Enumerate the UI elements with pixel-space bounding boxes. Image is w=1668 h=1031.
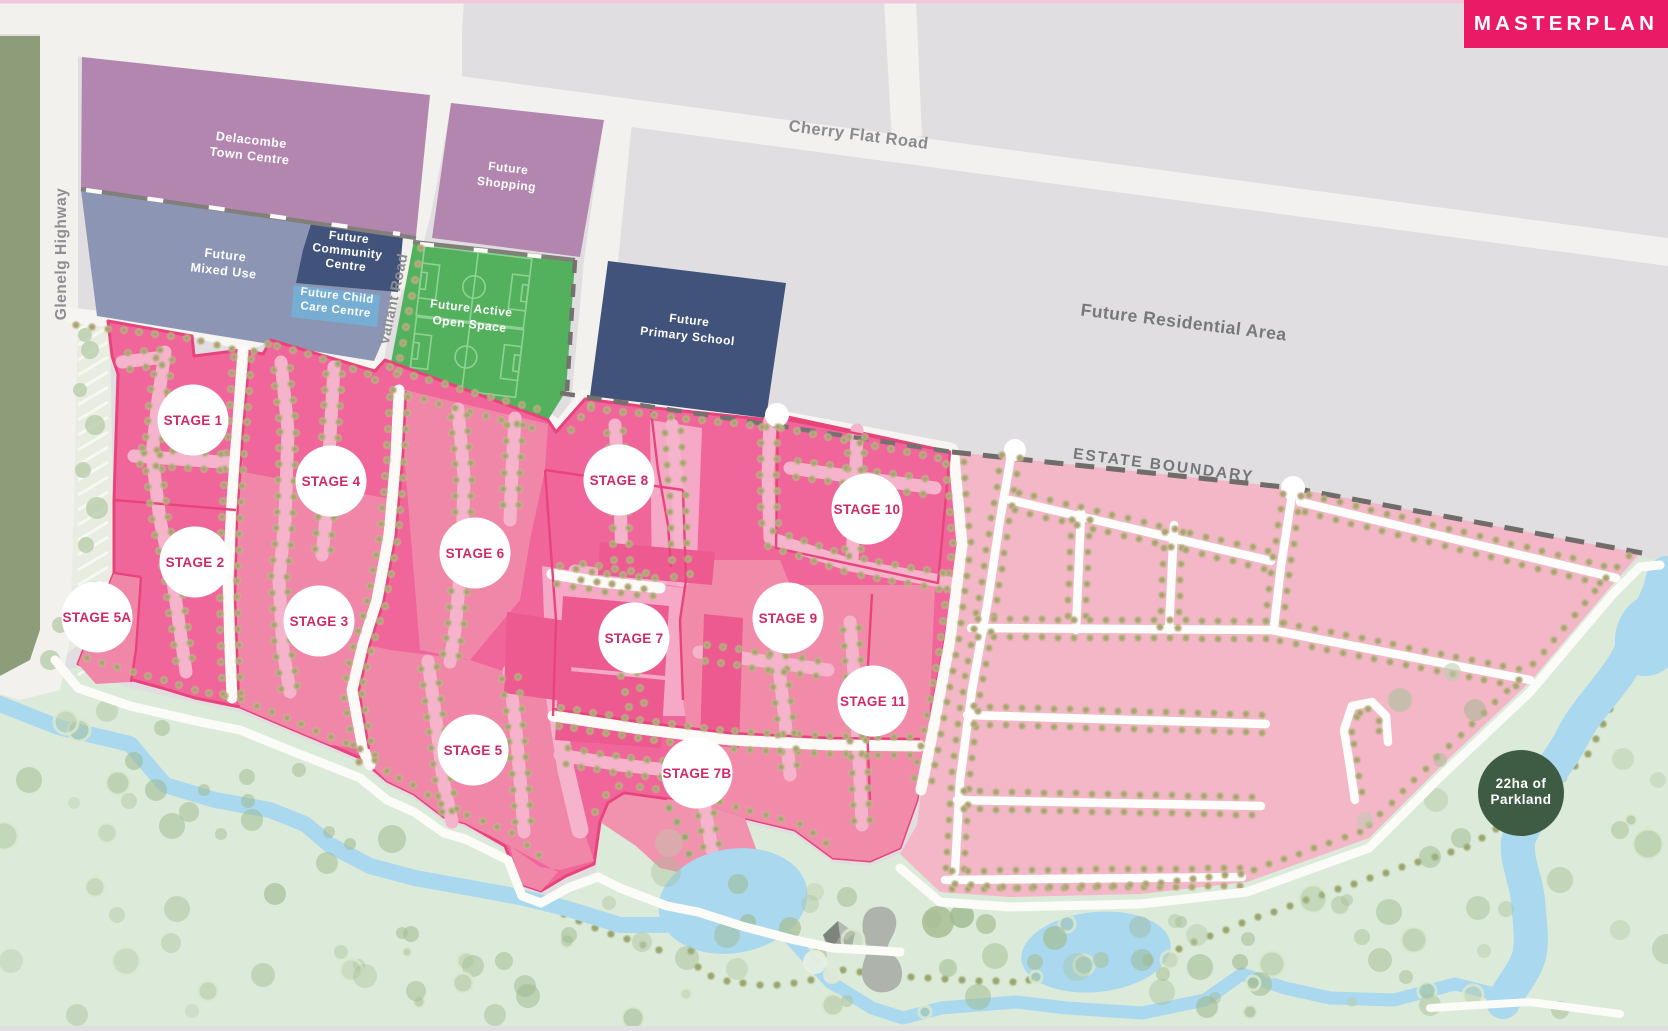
svg-text:STAGE 10: STAGE 10 (834, 502, 901, 517)
svg-text:STAGE 11: STAGE 11 (840, 694, 906, 709)
svg-text:STAGE 2: STAGE 2 (166, 555, 225, 570)
svg-text:STAGE 7B: STAGE 7B (663, 766, 732, 781)
svg-text:Glenelg Highway: Glenelg Highway (53, 188, 70, 320)
svg-text:STAGE 1: STAGE 1 (164, 413, 223, 428)
svg-text:STAGE 4: STAGE 4 (302, 474, 361, 489)
svg-text:STAGE 8: STAGE 8 (590, 473, 649, 488)
svg-text:STAGE 3: STAGE 3 (290, 614, 349, 629)
svg-text:MASTERPLAN: MASTERPLAN (1474, 12, 1658, 35)
svg-text:STAGE 9: STAGE 9 (759, 611, 818, 626)
svg-text:STAGE 5: STAGE 5 (444, 743, 503, 758)
svg-text:STAGE 7: STAGE 7 (605, 631, 664, 646)
svg-text:22ha ofParkland: 22ha ofParkland (1490, 776, 1551, 807)
svg-text:STAGE 5A: STAGE 5A (63, 610, 132, 625)
svg-text:STAGE 6: STAGE 6 (446, 546, 505, 561)
